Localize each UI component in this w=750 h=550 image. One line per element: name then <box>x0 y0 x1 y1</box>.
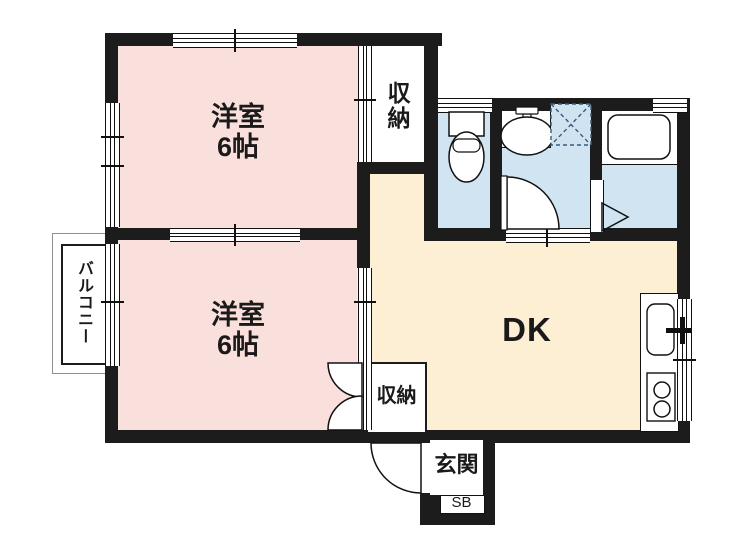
room-size: 6帖 <box>118 132 358 162</box>
entrance-label: 玄関 <box>430 453 483 478</box>
wall-segment <box>430 430 483 440</box>
entrance-door-swing-icon <box>371 443 421 493</box>
bedroom-top-label: 洋室 6帖 <box>118 102 358 162</box>
wall-segment <box>420 493 440 512</box>
washbasin-counter <box>502 111 551 148</box>
bathtub-zone <box>602 111 677 165</box>
sliding-door-symbol <box>358 268 372 362</box>
closet-bottom-label: 収納 <box>368 385 425 407</box>
bedroom-bottom-label: 洋室 6帖 <box>118 300 358 360</box>
room-name: 洋室 <box>118 102 358 132</box>
door-opening <box>590 180 604 232</box>
shoe-box-label: SB <box>440 495 483 512</box>
room-size: 6帖 <box>118 330 358 360</box>
wall-segment <box>357 162 370 268</box>
dk-label: DK <box>467 312 587 349</box>
window-symbol <box>653 98 687 113</box>
closet-top-label: 収納 <box>370 56 424 156</box>
window-symbol <box>173 33 297 48</box>
wall-segment <box>424 33 438 240</box>
floor-plan: 洋室 6帖 洋室 6帖 DK 収納 収納 玄関 SB バルコニー <box>0 0 750 550</box>
window-symbol <box>677 299 692 421</box>
sliding-door-symbol <box>170 228 300 242</box>
balcony-label: バルコニー <box>61 244 105 361</box>
room-name: 洋室 <box>118 300 358 330</box>
kitchen-counter <box>640 293 679 432</box>
sliding-door-symbol <box>506 228 590 243</box>
wall-segment <box>490 98 502 241</box>
window-symbol <box>438 98 492 113</box>
